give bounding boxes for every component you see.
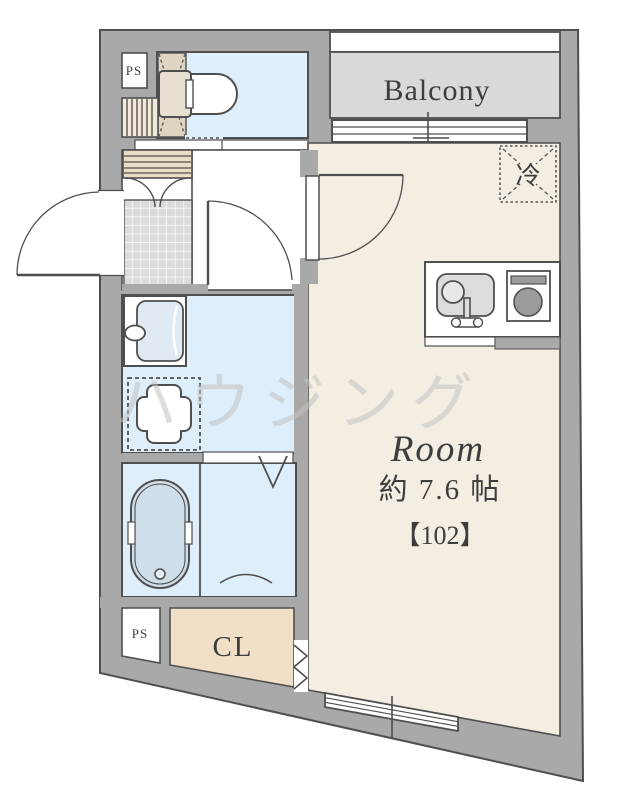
watermark-text: ハウジング — [115, 370, 485, 438]
louver-box — [122, 98, 158, 137]
closet-label: CL — [212, 631, 253, 663]
threshold-band — [135, 140, 308, 150]
room-name-label: Room — [390, 429, 485, 470]
bathtub-icon — [128, 480, 192, 588]
floor-plan-canvas: Balcony PS — [0, 0, 619, 800]
floor-plan: Balcony PS — [0, 0, 619, 800]
hallway — [122, 150, 308, 290]
vanity-basin-icon — [124, 296, 186, 366]
entrance-tile-floor — [124, 200, 192, 287]
counter-edge — [425, 337, 495, 346]
stove-burner-icon — [507, 271, 550, 321]
ps-bottom-label: PS — [132, 626, 148, 641]
room-number-label: 【102】 — [394, 521, 485, 550]
wall-below-bath — [100, 597, 308, 608]
ps-shaft-top: PS — [122, 53, 147, 88]
room-size-label: 約 7.6 帖 — [379, 473, 502, 506]
kitchen-counter — [425, 262, 560, 349]
ps-shaft-bottom: PS — [122, 608, 160, 663]
balcony: Balcony — [330, 32, 560, 118]
room-label-group: Room 約 7.6 帖 【102】 — [379, 429, 502, 550]
fridge-label: 冷 — [515, 162, 540, 190]
toilet-room — [157, 52, 308, 141]
balcony-label: Balcony — [384, 74, 491, 107]
bathroom — [122, 452, 296, 597]
ps-top-label: PS — [126, 63, 142, 78]
entrance-door-swing — [17, 191, 124, 276]
toilet-icon — [159, 71, 237, 117]
shoe-cabinet-icon — [123, 150, 192, 178]
kitchen-wall-stub — [495, 337, 560, 349]
